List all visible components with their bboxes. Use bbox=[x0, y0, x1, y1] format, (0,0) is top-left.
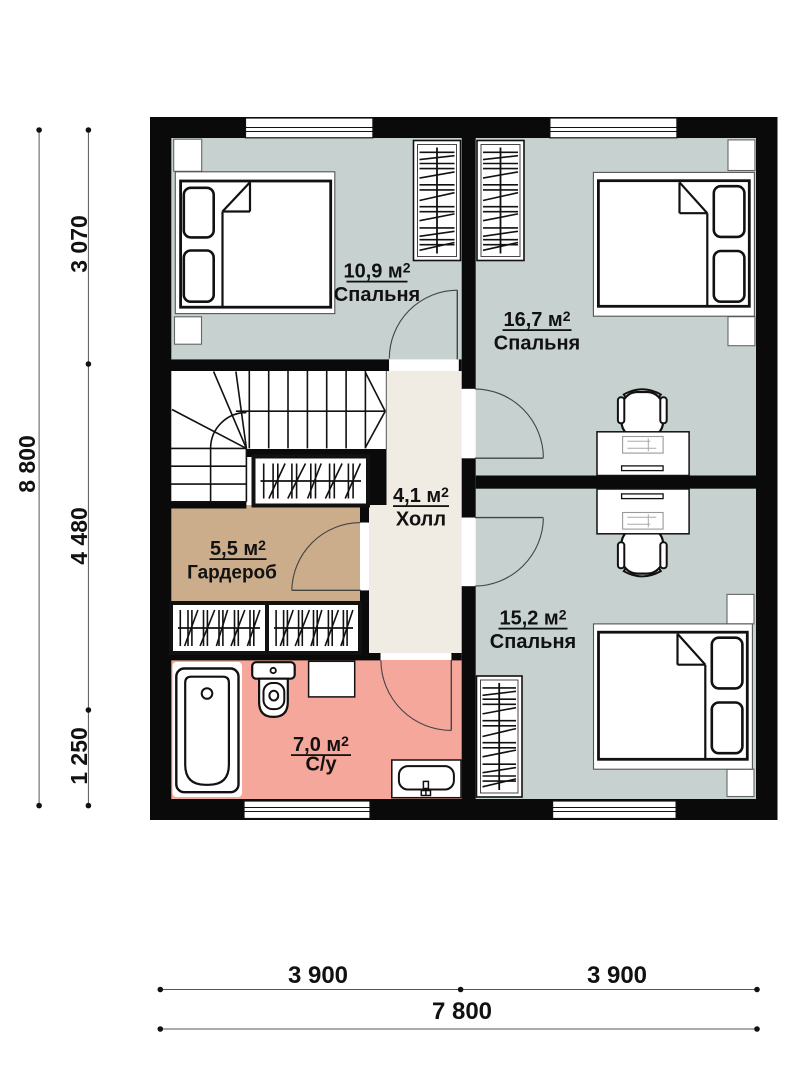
svg-text:3 900: 3 900 bbox=[587, 962, 647, 989]
svg-text:15,2 м2: 15,2 м2 bbox=[499, 607, 566, 630]
svg-text:8 800: 8 800 bbox=[14, 435, 40, 493]
svg-text:Гардероб: Гардероб bbox=[187, 563, 277, 584]
svg-text:4,1 м2: 4,1 м2 bbox=[393, 484, 449, 507]
svg-text:10,9 м2: 10,9 м2 bbox=[343, 260, 410, 283]
svg-text:Холл: Холл bbox=[396, 509, 446, 531]
svg-text:16,7 м2: 16,7 м2 bbox=[503, 308, 570, 331]
svg-text:5,5 м2: 5,5 м2 bbox=[210, 537, 266, 560]
svg-text:С/у: С/у bbox=[305, 754, 337, 776]
svg-text:7 800: 7 800 bbox=[432, 998, 492, 1025]
svg-text:Спальня: Спальня bbox=[334, 284, 420, 306]
svg-text:4 480: 4 480 bbox=[66, 507, 92, 565]
svg-text:Спальня: Спальня bbox=[494, 333, 580, 355]
svg-text:1 250: 1 250 bbox=[66, 727, 92, 785]
svg-text:3 900: 3 900 bbox=[288, 962, 348, 989]
svg-text:3 070: 3 070 bbox=[66, 215, 92, 273]
svg-text:Спальня: Спальня bbox=[490, 631, 576, 653]
